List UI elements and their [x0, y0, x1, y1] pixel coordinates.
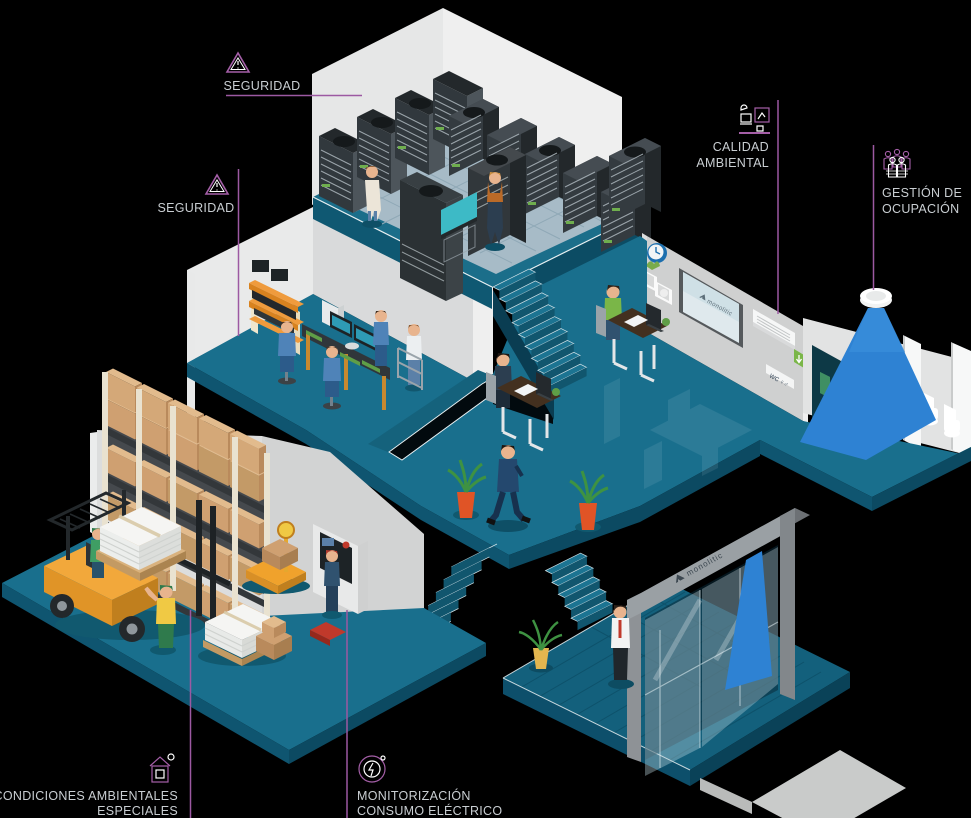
svg-text:CONDICIONES AMBIENTALES: CONDICIONES AMBIENTALES — [0, 789, 178, 803]
svg-text:MONITORIZACIÓN: MONITORIZACIÓN — [357, 788, 471, 803]
svg-text:ESPECIALES: ESPECIALES — [97, 804, 178, 818]
svg-text:GESTIÓN DE: GESTIÓN DE — [882, 185, 962, 200]
svg-text:OCUPACIÓN: OCUPACIÓN — [882, 201, 959, 216]
svg-text:SEGURIDAD: SEGURIDAD — [223, 79, 300, 93]
svg-text:AMBIENTAL: AMBIENTAL — [696, 156, 769, 170]
svg-text:SEGURIDAD: SEGURIDAD — [157, 201, 234, 215]
svg-text:CONSUMO ELÉCTRICO: CONSUMO ELÉCTRICO — [357, 803, 502, 818]
svg-text:CALIDAD: CALIDAD — [713, 140, 769, 154]
